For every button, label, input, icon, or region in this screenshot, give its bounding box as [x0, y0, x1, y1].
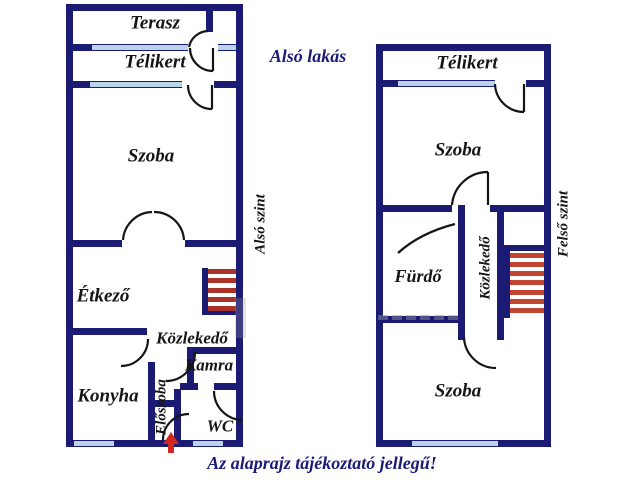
stair-tread [510, 290, 544, 295]
stair-tread [208, 306, 236, 311]
door-swing [154, 212, 184, 240]
room-label-etkezo: Étkező [77, 287, 130, 306]
stair-wall [504, 245, 544, 251]
disclaimer-text: Az alaprajz tájékoztató jellegű! [207, 454, 437, 472]
stair-tread [510, 299, 544, 304]
wall [383, 80, 398, 87]
wall [544, 44, 551, 447]
room-label-kozlekedo: Közlekedő [479, 236, 494, 299]
level-label-also-szint: Alsó szint [254, 194, 269, 254]
stair-tread [510, 253, 544, 258]
door-swing [189, 31, 208, 47]
room-label-terasz: Terasz [130, 14, 180, 33]
stair-tread [510, 308, 544, 313]
floor-plan-canvas: Terasz Télikert Szoba Étkező Közlekedő K… [0, 0, 640, 480]
window [92, 44, 188, 51]
wall [66, 4, 73, 447]
door-swing [495, 84, 524, 112]
wall [458, 205, 465, 340]
window [218, 44, 236, 51]
door-swing [190, 48, 213, 71]
wall [236, 4, 243, 447]
room-label-szoba-lower: Szoba [435, 382, 481, 401]
door-swing [123, 212, 152, 240]
wall [206, 11, 213, 32]
window [398, 80, 495, 87]
wall [73, 328, 147, 335]
watermark-smudge [235, 298, 246, 338]
room-label-furdo: Fürdő [394, 267, 441, 285]
room-label-wc: WC [207, 418, 233, 435]
page-title: Alsó lakás [270, 47, 347, 65]
wall [73, 81, 90, 88]
staircase [510, 253, 544, 313]
wall [187, 347, 236, 354]
room-label-szoba-upper: Szoba [435, 141, 481, 160]
wall [383, 205, 452, 212]
stair-tread [208, 288, 236, 293]
room-label-konyha: Konyha [77, 387, 138, 406]
wall [526, 80, 544, 87]
window [193, 440, 223, 447]
level-label-felso-szint: Felső szint [557, 191, 572, 257]
door-swing [464, 337, 496, 368]
wall [174, 389, 181, 440]
room-label-kamra: Kamra [185, 357, 233, 374]
stair-tread [208, 278, 236, 283]
room-label-telikert: Télikert [124, 53, 185, 72]
wall [214, 81, 236, 88]
stair-tread [208, 269, 236, 274]
watermark-smudge [378, 315, 458, 320]
wall [66, 4, 243, 11]
door-swing [452, 172, 488, 205]
stair-tread [510, 271, 544, 276]
staircase [208, 269, 236, 311]
wall [214, 383, 236, 390]
wall [180, 383, 198, 390]
door-swing [398, 224, 455, 253]
stair-tread [208, 297, 236, 302]
stair-tread [510, 280, 544, 285]
wall [73, 240, 122, 247]
door-swing [121, 339, 148, 366]
wall [376, 44, 383, 447]
stair-tread [510, 262, 544, 267]
door-swing [188, 85, 212, 109]
window [412, 440, 498, 447]
wall [185, 240, 236, 247]
wall [73, 44, 92, 51]
wall [376, 44, 551, 51]
window [90, 81, 182, 88]
room-label-telikert: Télikert [436, 54, 497, 73]
room-label-szoba: Szoba [128, 147, 174, 166]
wall [497, 205, 504, 340]
room-label-kozlekedo: Közlekedő [156, 330, 228, 347]
room-label-eloszoba: Előszoba [155, 379, 170, 435]
window [74, 440, 114, 447]
